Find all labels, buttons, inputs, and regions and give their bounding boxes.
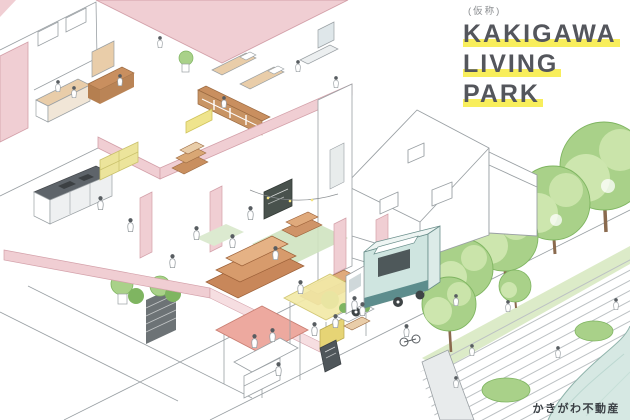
tentative-name-label: (仮称) (468, 3, 630, 17)
yellow-bench (186, 109, 212, 133)
mirror (318, 22, 334, 48)
title-line-3: PARK (463, 79, 630, 109)
pillar (140, 192, 152, 258)
company-name: かきがわ不動産 (533, 400, 621, 416)
retaining-wall (422, 350, 474, 420)
potted-plant (179, 51, 193, 72)
building-second-floor (0, 0, 352, 179)
rug (196, 224, 244, 246)
pillar (334, 218, 346, 274)
cyclist (400, 324, 420, 346)
title-line-1: KAKIGAWA (463, 19, 630, 49)
tall-cabinet (92, 41, 114, 77)
roof-corner (0, 0, 16, 17)
reception-counter (36, 79, 90, 122)
left-exterior-wall (0, 42, 28, 142)
title-line-2: LIVING (463, 49, 630, 79)
market-stall-pink (216, 306, 308, 398)
bush (482, 378, 530, 402)
ground-slab (4, 250, 210, 298)
recliner-bed (240, 66, 284, 89)
bush (575, 321, 613, 341)
title-block: (仮称) KAKIGAWA LIVING PARK (463, 3, 630, 109)
roof-slab (96, 0, 348, 63)
